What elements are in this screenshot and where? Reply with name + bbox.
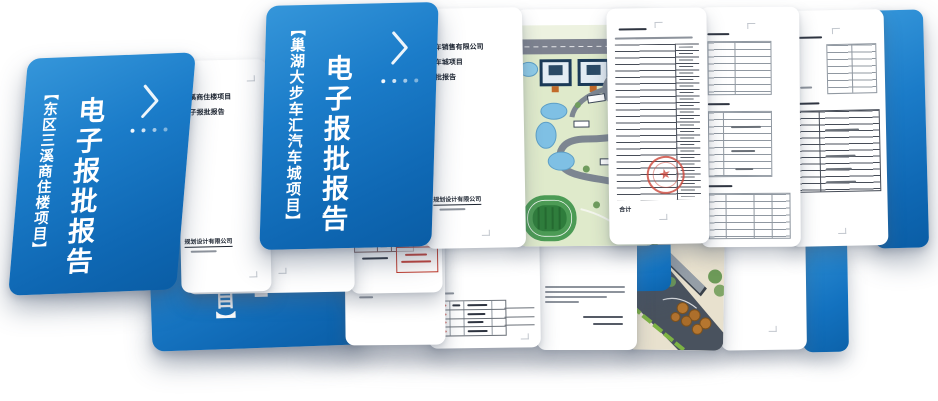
crop-mark bbox=[769, 326, 777, 332]
mini-table bbox=[708, 193, 790, 240]
crop-mark bbox=[249, 271, 257, 277]
cover-main-title: 电子报批报告 bbox=[318, 54, 351, 241]
report-collage: 目】 bbox=[0, 0, 938, 401]
total-label: 合计 bbox=[619, 204, 631, 213]
text-line bbox=[545, 291, 625, 293]
mini-table bbox=[794, 109, 882, 193]
signature-line bbox=[583, 316, 623, 318]
crop-mark bbox=[278, 268, 286, 274]
table-header bbox=[615, 37, 693, 40]
date-line bbox=[191, 250, 217, 252]
cover-project-title: 【巢湖大步车汇汽车城项目】 bbox=[284, 21, 305, 238]
publisher-line: 规划设计有限公司 bbox=[184, 236, 232, 248]
cover-main-title: 电子报批报告 bbox=[61, 96, 104, 288]
crop-mark bbox=[655, 22, 663, 28]
red-annotation-box bbox=[396, 246, 438, 273]
cover-project-title: 【东区三溪商住楼项目】 bbox=[26, 86, 58, 291]
document-page-detail-table: ★ 合计 bbox=[606, 7, 709, 244]
pagination-dots[interactable] bbox=[381, 78, 418, 83]
date-line bbox=[439, 208, 465, 210]
table-title bbox=[796, 36, 822, 38]
next-chevron-icon[interactable] bbox=[138, 82, 163, 121]
cover-back-title-tail: 目】 bbox=[212, 289, 234, 346]
mini-table bbox=[708, 111, 772, 177]
mini-table bbox=[826, 43, 877, 94]
document-page-tables-middle bbox=[699, 7, 801, 248]
pagination-dots[interactable] bbox=[130, 127, 167, 132]
crop-mark bbox=[747, 23, 755, 29]
table-title bbox=[708, 103, 730, 105]
crop-mark bbox=[838, 228, 846, 234]
document-page-tables-right bbox=[786, 9, 889, 247]
blue-card-edge-right bbox=[801, 240, 849, 353]
text-line bbox=[545, 296, 607, 298]
floor-shadow bbox=[300, 352, 730, 370]
text-line bbox=[545, 301, 579, 303]
cover-card-left[interactable]: 【东区三溪商住楼项目】 电子报批报告 bbox=[8, 52, 196, 295]
text-line bbox=[362, 257, 388, 259]
publisher-line: 规划设计有限公司 bbox=[433, 194, 481, 206]
crop-mark bbox=[521, 333, 529, 339]
mini-table bbox=[707, 41, 771, 95]
table-title bbox=[708, 185, 732, 187]
title-page-middle-report: 汽车销售有限公司 汽车城项目 报批报告 规划设计有限公司 bbox=[422, 7, 526, 249]
table-title bbox=[707, 33, 729, 35]
crop-mark bbox=[482, 230, 490, 236]
date-line bbox=[593, 323, 623, 325]
crop-mark bbox=[659, 214, 667, 220]
text-line bbox=[359, 296, 373, 298]
text-line bbox=[545, 286, 625, 288]
cover-card-middle[interactable]: 【巢湖大步车汇汽车城项目】 电子报批报告 bbox=[259, 2, 438, 250]
next-chevron-icon[interactable] bbox=[389, 29, 412, 68]
table-title bbox=[619, 28, 647, 30]
crop-mark bbox=[832, 28, 840, 34]
crop-mark bbox=[247, 75, 255, 81]
